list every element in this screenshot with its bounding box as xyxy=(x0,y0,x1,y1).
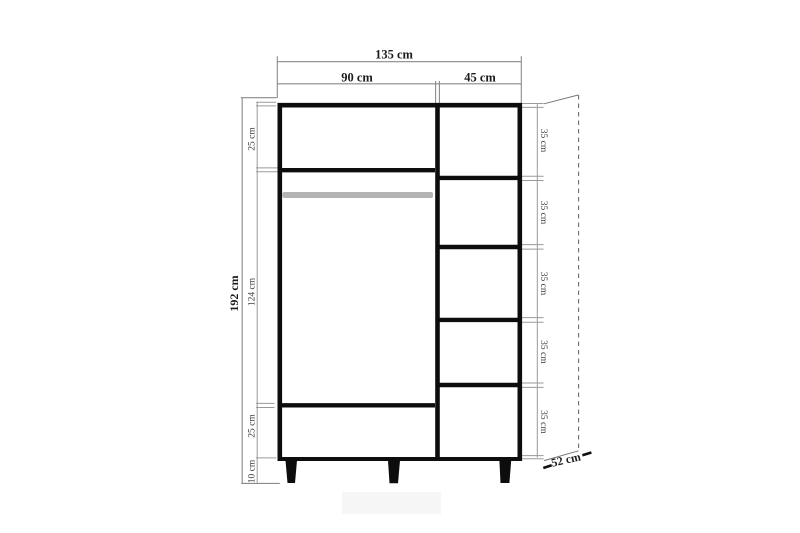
svg-text:35 cm: 35 cm xyxy=(538,340,548,364)
svg-text:135 cm: 135 cm xyxy=(375,48,413,62)
svg-text:35 cm: 35 cm xyxy=(538,129,548,153)
svg-text:90 cm: 90 cm xyxy=(341,70,373,84)
svg-text:10 cm: 10 cm xyxy=(248,459,258,483)
svg-text:45 cm: 45 cm xyxy=(464,71,496,85)
svg-text:25 cm: 25 cm xyxy=(248,127,258,151)
svg-text:35 cm: 35 cm xyxy=(538,201,548,225)
svg-text:192 cm: 192 cm xyxy=(227,275,241,311)
svg-text:35 cm: 35 cm xyxy=(538,410,548,434)
svg-text:25 cm: 25 cm xyxy=(248,414,258,438)
svg-text:124 cm: 124 cm xyxy=(248,277,258,306)
svg-text:35 cm: 35 cm xyxy=(538,272,548,296)
